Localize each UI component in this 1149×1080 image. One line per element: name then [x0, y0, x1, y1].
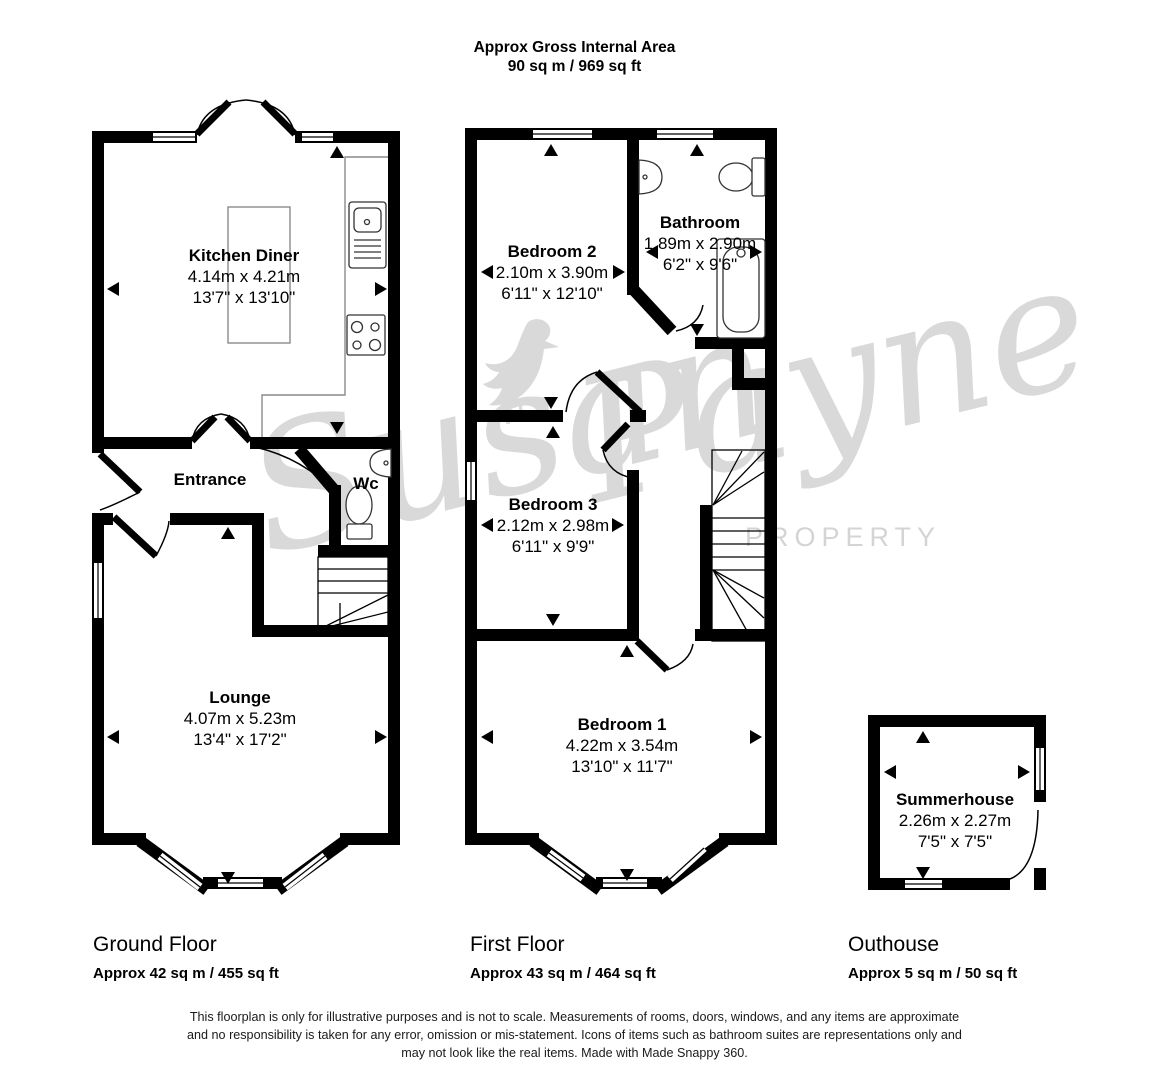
- floor-area: Approx 42 sq m / 455 sq ft: [93, 965, 279, 982]
- room-name: Bedroom 3: [497, 494, 609, 515]
- disclaimer-line2: and no responsibility is taken for any e…: [0, 1026, 1149, 1044]
- floor-caption-outhouse: Outhouse Approx 5 sq m / 50 sq ft: [848, 933, 1017, 982]
- kitchen-sink-icon: [349, 202, 386, 268]
- floor-area: Approx 43 sq m / 464 sq ft: [470, 965, 656, 982]
- floor-caption-first-floor: First Floor Approx 43 sq m / 464 sq ft: [470, 933, 656, 982]
- page-title-line2: 90 sq m / 969 sq ft: [0, 57, 1149, 76]
- room-label-bathroom: Bathroom 1.89m x 2.90m 6'2" x 9'6": [644, 212, 756, 275]
- floor-name: First Floor: [470, 933, 656, 957]
- page-title-line1: Approx Gross Internal Area: [0, 38, 1149, 57]
- disclaimer-line3: may not look like the real items. Made w…: [0, 1044, 1149, 1062]
- ground-floor-stairs-icon: [318, 557, 388, 631]
- room-label-lounge: Lounge 4.07m x 5.23m 13'4" x 17'2": [184, 687, 296, 750]
- disclaimer: This floorplan is only for illustrative …: [0, 1008, 1149, 1062]
- room-name: Lounge: [184, 687, 296, 708]
- ground-floor-plan: [92, 100, 400, 890]
- room-label-bedroom-3: Bedroom 3 2.12m x 2.98m 6'11" x 9'9": [497, 494, 609, 557]
- room-name: Wc: [353, 473, 379, 494]
- page-title: Approx Gross Internal Area 90 sq m / 969…: [0, 38, 1149, 76]
- room-label-summerhouse: Summerhouse 2.26m x 2.27m 7'5" x 7'5": [896, 789, 1014, 852]
- room-dim-imperial: 13'7" x 13'10": [188, 287, 300, 308]
- outhouse-door: [1010, 810, 1038, 879]
- room-label-bedroom-2: Bedroom 2 2.10m x 3.90m 6'11" x 12'10": [496, 241, 608, 304]
- room-dim-metric: 2.12m x 2.98m: [497, 515, 609, 536]
- room-dim-metric: 4.14m x 4.21m: [188, 266, 300, 287]
- room-label-wc: Wc: [353, 473, 379, 494]
- bathroom-toilet-icon: [719, 158, 765, 196]
- room-dim-imperial: 6'11" x 9'9": [497, 536, 609, 557]
- floorplan-page: Susan Payne PROPERTY: [0, 0, 1149, 1080]
- room-dim-imperial: 13'10" x 11'7": [566, 756, 678, 777]
- room-name: Bedroom 2: [496, 241, 608, 262]
- room-dim-imperial: 6'2" x 9'6": [644, 254, 756, 275]
- room-label-bedroom-1: Bedroom 1 4.22m x 3.54m 13'10" x 11'7": [566, 714, 678, 777]
- room-dim-imperial: 6'11" x 12'10": [496, 283, 608, 304]
- room-dim-imperial: 7'5" x 7'5": [896, 831, 1014, 852]
- room-name: Bathroom: [644, 212, 756, 233]
- room-dim-metric: 4.07m x 5.23m: [184, 708, 296, 729]
- room-dim-metric: 4.22m x 3.54m: [566, 735, 678, 756]
- room-name: Kitchen Diner: [188, 245, 300, 266]
- floor-caption-ground-floor: Ground Floor Approx 42 sq m / 455 sq ft: [93, 933, 279, 982]
- room-name: Summerhouse: [896, 789, 1014, 810]
- room-name: Entrance: [174, 469, 247, 490]
- first-floor-stairs-icon: [712, 450, 765, 641]
- bird-watermark-icon: [483, 319, 559, 424]
- bathroom-basin-icon: [639, 160, 662, 194]
- floor-area: Approx 5 sq m / 50 sq ft: [848, 965, 1017, 982]
- floor-name: Ground Floor: [93, 933, 279, 957]
- room-name: Bedroom 1: [566, 714, 678, 735]
- kitchen-hob-icon: [347, 315, 385, 355]
- room-dim-metric: 2.26m x 2.27m: [896, 810, 1014, 831]
- room-label-kitchen-diner: Kitchen Diner 4.14m x 4.21m 13'7" x 13'1…: [188, 245, 300, 308]
- room-dim-metric: 1.89m x 2.90m: [644, 233, 756, 254]
- room-dim-imperial: 13'4" x 17'2": [184, 729, 296, 750]
- room-label-entrance: Entrance: [174, 469, 247, 490]
- floor-name: Outhouse: [848, 933, 1017, 957]
- room-dim-metric: 2.10m x 3.90m: [496, 262, 608, 283]
- disclaimer-line1: This floorplan is only for illustrative …: [0, 1008, 1149, 1026]
